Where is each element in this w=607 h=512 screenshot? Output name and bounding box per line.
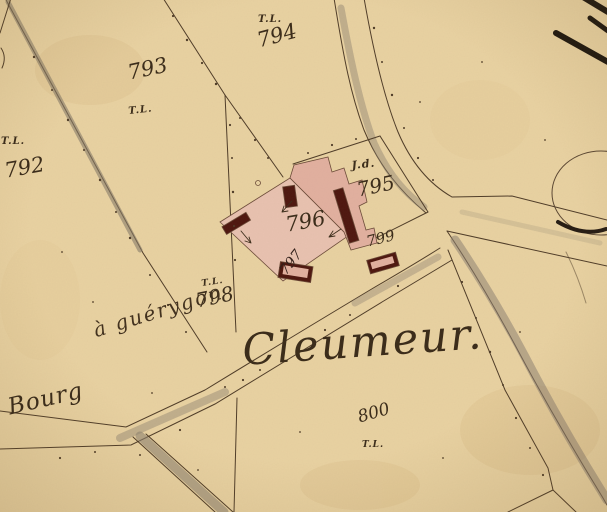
parcel-note-800: T.L. [362,441,384,450]
parcel-note-792: T.L. [1,137,25,147]
cadastral-map: T.L. 792 793 T.L. T.L. 794 J.d. 795 796 … [0,0,607,512]
parcel-note-795: J.d. [351,158,376,171]
